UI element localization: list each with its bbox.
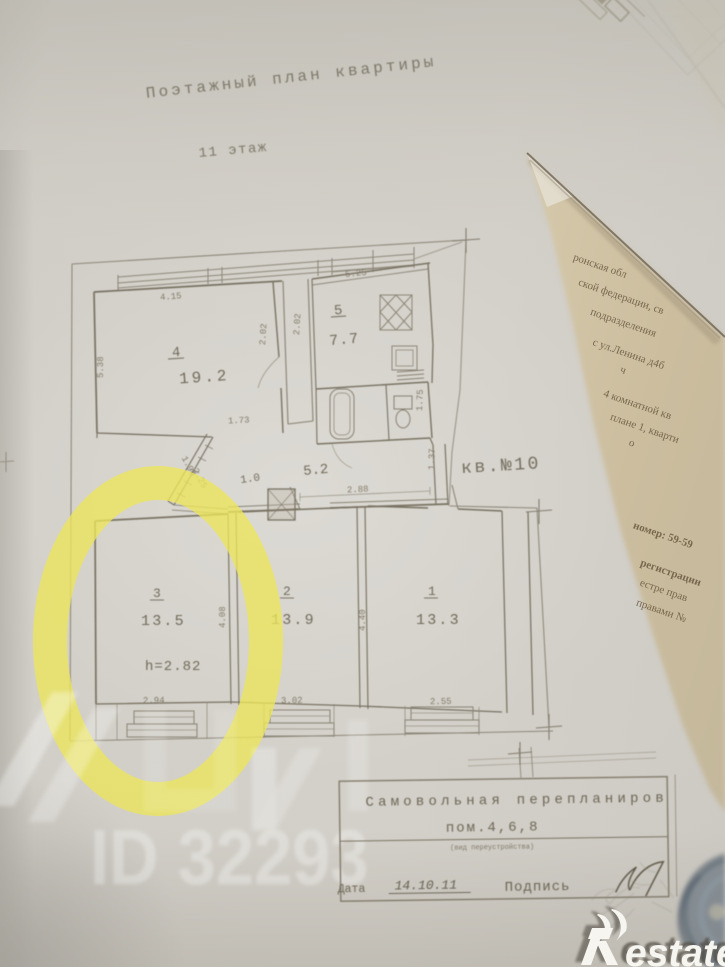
svg-text:estate: estate xyxy=(625,932,725,967)
